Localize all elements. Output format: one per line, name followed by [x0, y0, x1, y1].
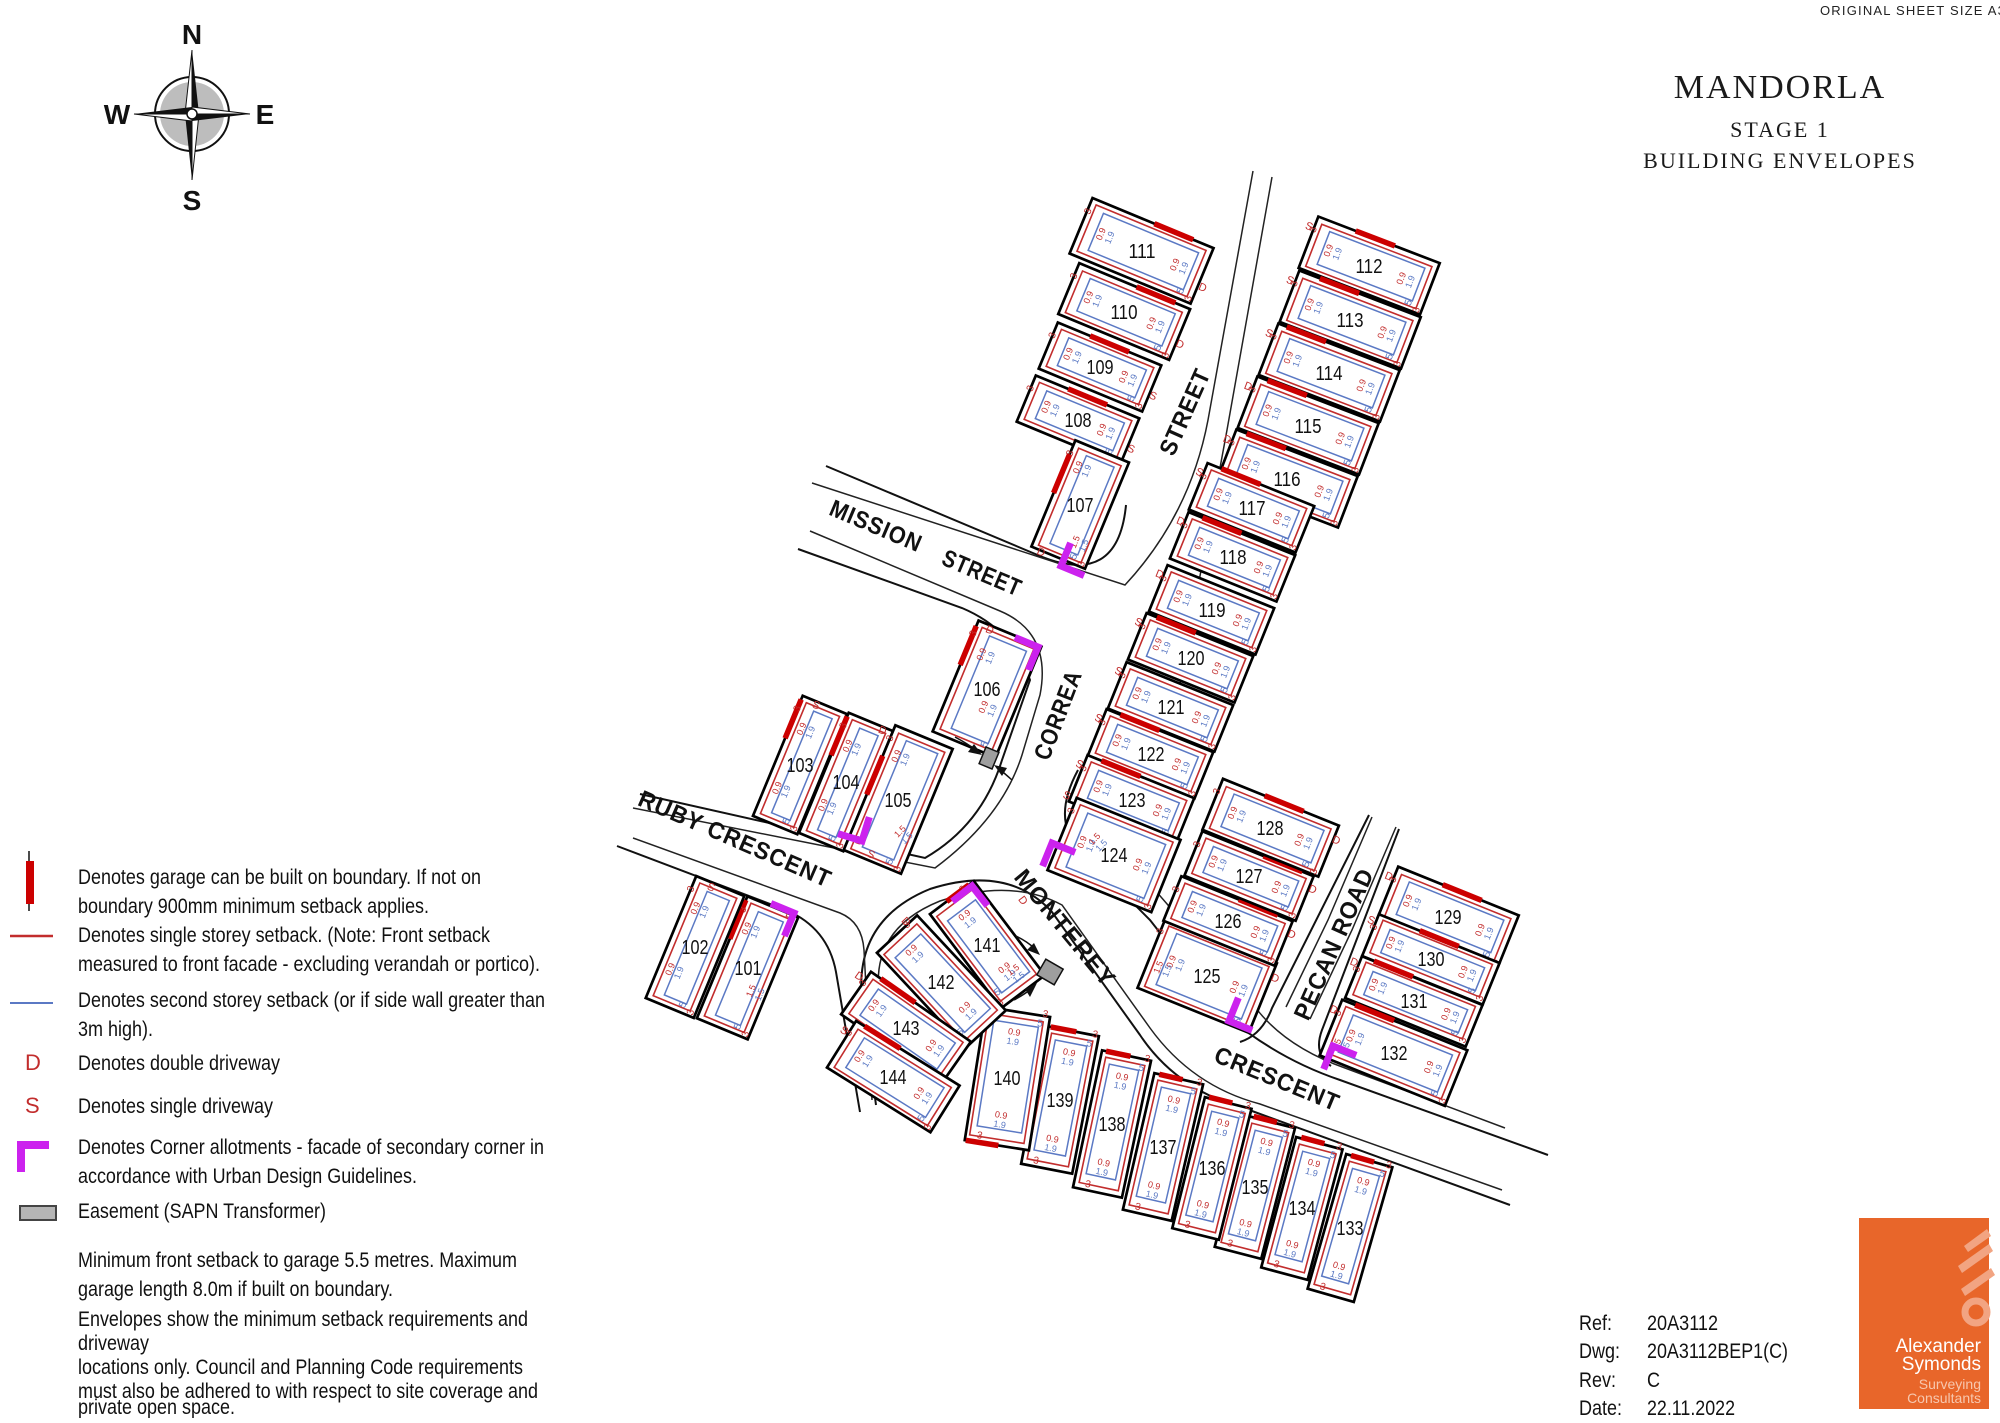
svg-text:Easement (SAPN Transformer): Easement (SAPN Transformer) [78, 1200, 326, 1223]
svg-text:BUILDING ENVELOPES: BUILDING ENVELOPES [1643, 148, 1917, 173]
svg-text:Denotes garage can be built on: Denotes garage can be built on boundary.… [78, 866, 481, 889]
svg-text:114: 114 [1316, 363, 1343, 385]
svg-text:139: 139 [1047, 1090, 1074, 1112]
svg-text:121: 121 [1158, 697, 1185, 719]
svg-text:102: 102 [682, 937, 709, 959]
svg-text:128: 128 [1257, 818, 1284, 840]
svg-text:125: 125 [1194, 966, 1221, 988]
svg-text:117: 117 [1239, 498, 1266, 520]
svg-text:driveway: driveway [78, 1332, 149, 1355]
svg-text:22.11.2022: 22.11.2022 [1647, 1397, 1735, 1418]
svg-text:STAGE 1: STAGE 1 [1730, 117, 1830, 142]
svg-text:locations only. Council and Pl: locations only. Council and Planning Cod… [78, 1356, 523, 1379]
svg-text:Denotes double driveway: Denotes double driveway [78, 1052, 280, 1075]
svg-text:112: 112 [1356, 256, 1383, 278]
svg-text:124: 124 [1101, 845, 1128, 867]
svg-text:S: S [25, 1093, 40, 1118]
svg-text:Date:: Date: [1579, 1397, 1622, 1418]
svg-text:110: 110 [1111, 302, 1138, 324]
svg-text:144: 144 [880, 1067, 907, 1089]
svg-text:1.9: 1.9 [993, 1119, 1007, 1131]
svg-text:109: 109 [1087, 357, 1114, 379]
svg-text:126: 126 [1215, 911, 1242, 933]
svg-text:1.9: 1.9 [1006, 1036, 1020, 1048]
svg-text:130: 130 [1418, 949, 1445, 971]
svg-text:135: 135 [1242, 1177, 1269, 1199]
svg-text:3m high).: 3m high). [78, 1018, 153, 1041]
svg-text:ORIGINAL SHEET SIZE A3: ORIGINAL SHEET SIZE A3 [1820, 3, 2000, 18]
svg-text:Ref:: Ref: [1579, 1312, 1612, 1335]
svg-text:141: 141 [974, 935, 1001, 957]
svg-text:123: 123 [1119, 790, 1146, 812]
svg-text:measured to front facade - exc: measured to front facade - excluding ver… [78, 953, 540, 976]
svg-text:MANDORLA: MANDORLA [1674, 69, 1886, 106]
svg-text:143: 143 [893, 1018, 920, 1040]
svg-text:122: 122 [1138, 744, 1165, 766]
svg-text:E: E [256, 99, 275, 130]
svg-text:S: S [183, 185, 202, 216]
svg-text:20A3112BEP1(C): 20A3112BEP1(C) [1647, 1340, 1788, 1363]
svg-text:Rev:: Rev: [1579, 1369, 1616, 1392]
svg-text:private open space.: private open space. [78, 1396, 235, 1418]
svg-text:119: 119 [1199, 600, 1226, 622]
svg-text:Minimum front setback to garag: Minimum front setback to garage 5.5 metr… [78, 1249, 517, 1272]
svg-text:Denotes Corner allotments - fa: Denotes Corner allotments - facade of se… [78, 1136, 544, 1159]
svg-text:140: 140 [994, 1068, 1021, 1090]
svg-text:Consultants: Consultants [1907, 1390, 1981, 1406]
svg-text:20A3112: 20A3112 [1647, 1312, 1718, 1335]
svg-text:105: 105 [885, 790, 912, 812]
svg-text:129: 129 [1435, 907, 1462, 929]
svg-text:127: 127 [1236, 866, 1263, 888]
svg-text:Denotes single storey setback.: Denotes single storey setback. (Note: Fr… [78, 924, 490, 947]
svg-text:132: 132 [1381, 1043, 1408, 1065]
svg-text:108: 108 [1065, 410, 1092, 432]
svg-text:104: 104 [833, 772, 860, 794]
svg-text:134: 134 [1289, 1198, 1316, 1220]
svg-text:113: 113 [1337, 310, 1364, 332]
svg-text:Dwg:: Dwg: [1579, 1340, 1620, 1363]
svg-text:Symonds: Symonds [1902, 1354, 1981, 1375]
svg-text:137: 137 [1150, 1137, 1177, 1159]
svg-text:111: 111 [1129, 241, 1156, 263]
svg-text:Envelopes show the minimum set: Envelopes show the minimum setback requi… [78, 1308, 528, 1331]
svg-text:Denotes second storey setback: Denotes second storey setback (or if sid… [78, 989, 545, 1012]
svg-text:boundary 900mm minimum setback: boundary 900mm minimum setback applies. [78, 895, 429, 918]
svg-text:133: 133 [1337, 1218, 1364, 1240]
svg-text:W: W [104, 99, 131, 130]
svg-text:131: 131 [1401, 991, 1428, 1013]
svg-text:accordance with Urban Design G: accordance with Urban Design Guidelines. [78, 1165, 417, 1188]
svg-text:Denotes single driveway: Denotes single driveway [78, 1095, 273, 1118]
svg-text:115: 115 [1295, 416, 1322, 438]
svg-text:garage length 8.0m if built on: garage length 8.0m if built on boundary. [78, 1278, 393, 1301]
svg-text:C: C [1647, 1369, 1660, 1392]
svg-text:116: 116 [1274, 469, 1301, 491]
svg-text:107: 107 [1067, 495, 1094, 517]
svg-text:106: 106 [974, 679, 1001, 701]
svg-text:N: N [182, 19, 202, 50]
svg-text:120: 120 [1178, 648, 1205, 670]
svg-text:118: 118 [1220, 547, 1247, 569]
svg-text:138: 138 [1099, 1114, 1126, 1136]
svg-text:142: 142 [928, 972, 955, 994]
svg-text:103: 103 [787, 755, 814, 777]
svg-text:101: 101 [735, 958, 762, 980]
svg-text:D: D [25, 1050, 41, 1075]
svg-text:136: 136 [1199, 1158, 1226, 1180]
